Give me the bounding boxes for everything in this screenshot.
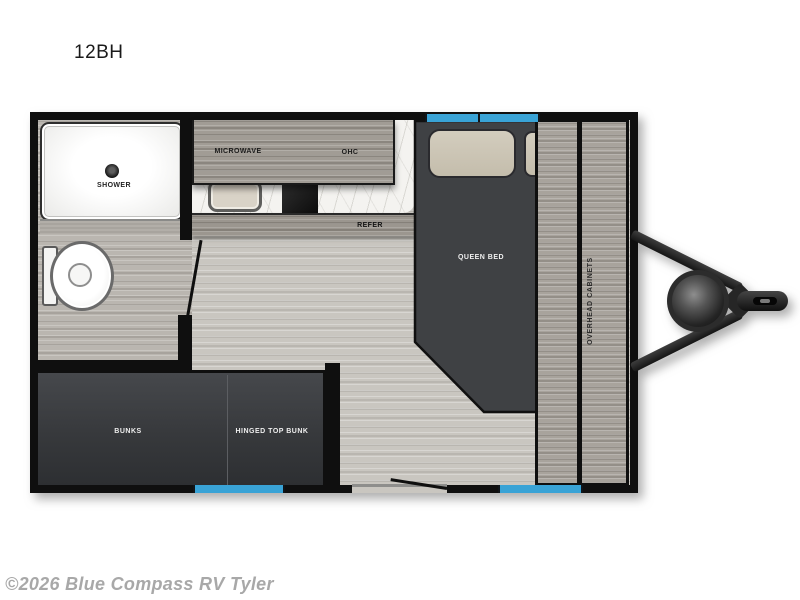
front-window [425,114,540,122]
queen-bed-label: QUEEN BED [431,254,531,261]
overhead-cabinet-column [538,122,577,483]
toilet-flush-icon [68,263,92,287]
microwave-label: MICROWAVE [194,148,282,155]
model-title: 12BH [74,42,124,64]
refer-label: REFER [340,222,400,229]
refer-cabinet: REFER [192,213,415,236]
hinged-top-bunk-label: HINGED TOP BUNK [212,428,332,435]
hitch-coupler-icon [737,291,788,311]
bunks-label: BUNKS [78,428,178,435]
shower-drain-icon [105,164,119,178]
floorplan-page: 12BH SHOWER MICROWAVE OHC REFER QUEEN BE… [0,0,800,600]
bathroom-wall-bottom [38,360,192,370]
bed-pillow [428,129,516,178]
watermark: ©2026 Blue Compass RV Tyler [5,574,274,595]
shower-label: SHOWER [42,182,186,189]
coupler-pin [760,299,770,303]
overhead-cabinets: OVERHEAD CABINETS [535,120,629,485]
rear-bunk-window [193,485,285,493]
propane-tank-ring [667,270,729,332]
shower-step [40,219,180,234]
window-divider [478,114,480,122]
coupler-slot [753,297,777,305]
upper-cabinet: MICROWAVE OHC [192,120,395,185]
floor-plan: SHOWER MICROWAVE OHC REFER QUEEN BED OVE… [30,112,638,493]
bunk-wall [325,363,340,493]
cooktop-icon [282,184,318,213]
shower-pan: SHOWER [40,122,184,221]
trailer-tongue [630,225,800,385]
rear-cabinet-window [498,485,583,493]
overhead-cabinets-label: OVERHEAD CABINETS [587,241,599,361]
propane-tank-icon [672,275,724,327]
bunks-area: BUNKS HINGED TOP BUNK [38,370,325,485]
ohc-label: OHC [320,149,380,156]
bathroom-wall-top [180,120,192,240]
